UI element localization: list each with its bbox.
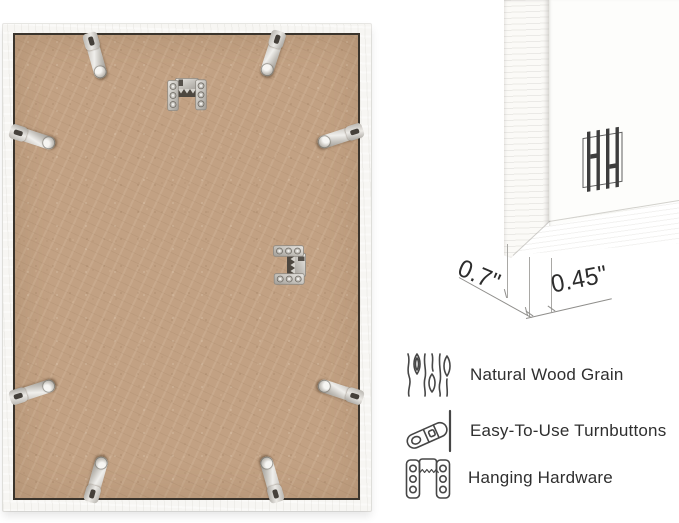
hanging-hardware-icon [404,455,452,501]
feature-label: Hanging Hardware [468,468,613,488]
width-dimension-line [526,298,612,319]
feature-row-turnbuttons: Easy-To-Use Turnbuttons [404,408,666,454]
feature-label: Easy-To-Use Turnbuttons [470,421,666,441]
face-width-dimension-label: 0.45" [549,262,610,297]
feature-label: Natural Wood Grain [470,365,624,385]
corner-side-face [504,0,549,258]
extension-line [529,257,530,317]
feature-row-wood-grain: Natural Wood Grain [404,352,624,398]
product-image: 0.7" 0.45" Natural Wood Grain [0,0,679,523]
wood-grain-icon [404,352,454,398]
sawtooth-hanger-icon [580,120,628,196]
turnbutton-icon [404,409,454,453]
feature-row-hanging-hardware: Hanging Hardware [404,455,613,501]
frame-back-photo [3,24,371,511]
extension-line [507,244,508,298]
sawtooth-hanger-side [272,245,308,285]
depth-dimension-label: 0.7" [454,256,504,296]
sawtooth-hanger-top [167,76,207,112]
